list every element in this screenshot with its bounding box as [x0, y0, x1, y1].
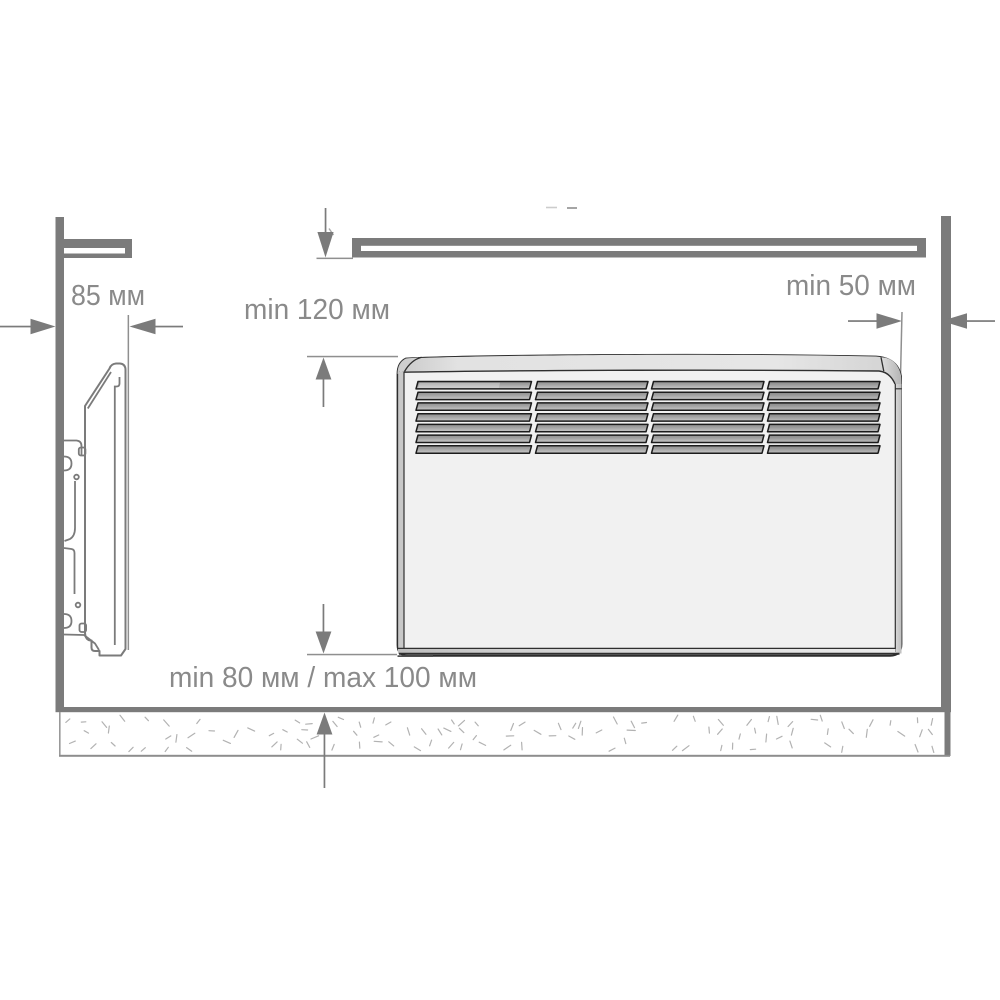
svg-text:min 120 мм: min 120 мм: [244, 294, 390, 326]
svg-text:min 50 мм: min 50 мм: [786, 270, 916, 302]
svg-text:85 мм: 85 мм: [71, 280, 145, 312]
svg-text:min 80 мм / max 100 мм: min 80 мм / max 100 мм: [169, 662, 477, 694]
